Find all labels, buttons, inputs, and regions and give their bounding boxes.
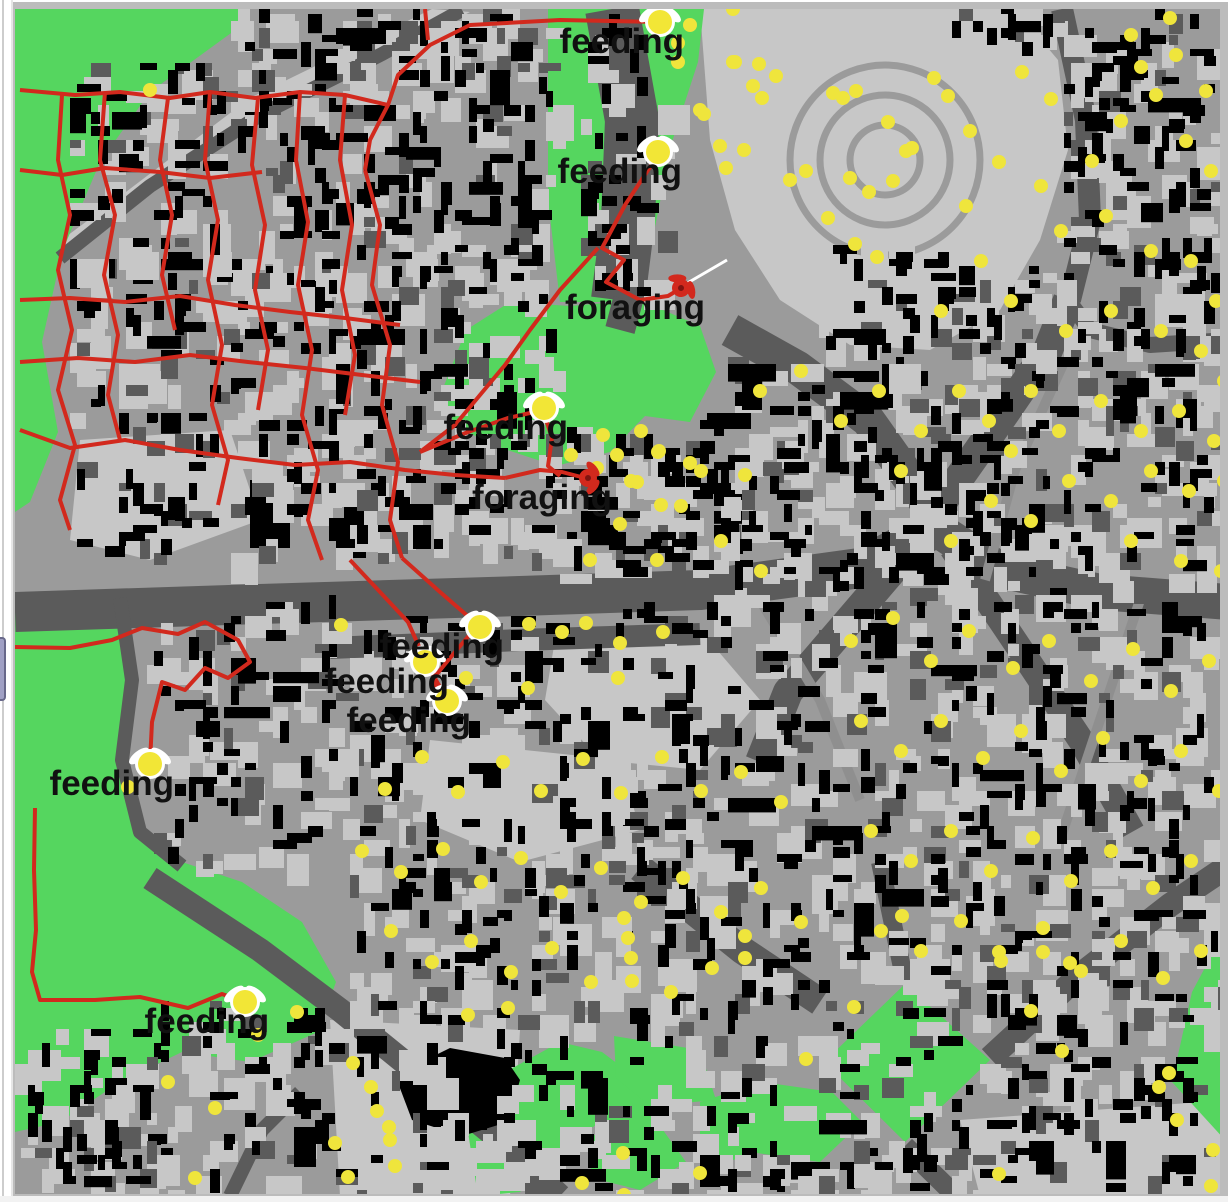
food-dot [613, 517, 627, 531]
agent-state-label: feeding [444, 408, 568, 447]
building [315, 168, 326, 183]
building [805, 840, 816, 852]
building [637, 77, 648, 96]
building [77, 1134, 87, 1151]
building [959, 287, 976, 297]
building [154, 301, 164, 320]
food-dot [1006, 661, 1020, 675]
pavement-patch [1211, 133, 1220, 144]
road-patch [1127, 931, 1147, 948]
building [483, 119, 494, 132]
food-dot [364, 1080, 378, 1094]
building [385, 399, 392, 410]
building [231, 686, 239, 705]
building [1127, 791, 1134, 813]
road-patch [539, 959, 557, 970]
building [875, 1162, 893, 1170]
building [798, 406, 811, 416]
pavement-patch [231, 553, 258, 584]
pavement-patch [1204, 1022, 1220, 1052]
building [189, 483, 197, 500]
building [1162, 378, 1175, 387]
food-dot [941, 89, 955, 103]
building [994, 896, 1005, 916]
building [819, 770, 830, 794]
food-dot [564, 448, 578, 462]
pavement-patch [1036, 350, 1057, 374]
building [413, 9, 420, 20]
building [1085, 1099, 1093, 1117]
building [980, 770, 1024, 781]
building [1092, 1057, 1111, 1068]
building [1064, 133, 1071, 148]
building [1085, 546, 1093, 571]
building [1183, 623, 1192, 636]
building [420, 1134, 427, 1147]
food-dot [161, 1075, 175, 1089]
road-patch [231, 504, 247, 518]
building [1057, 693, 1087, 704]
pavement-patch [1008, 581, 1020, 591]
pavement-patch [847, 1050, 869, 1066]
building [1001, 9, 1014, 14]
building [1043, 665, 1063, 674]
food-dot [738, 951, 752, 965]
road-patch [469, 357, 489, 379]
building [420, 1015, 442, 1024]
building [931, 273, 946, 281]
road-patch [252, 483, 274, 497]
pavement-patch [1057, 280, 1077, 306]
building [546, 329, 557, 353]
building [833, 847, 850, 858]
road-patch [357, 490, 378, 511]
building [329, 749, 338, 761]
food-dot [1036, 921, 1050, 935]
road-patch [896, 448, 915, 463]
building [567, 931, 578, 940]
road-patch [882, 602, 897, 610]
building [994, 602, 1012, 612]
building [616, 560, 641, 568]
building [938, 1036, 963, 1046]
building [70, 189, 85, 198]
pavement-patch [427, 777, 438, 810]
building [1071, 1064, 1090, 1072]
building [1029, 567, 1036, 577]
pavement-patch [539, 917, 552, 930]
building [1001, 483, 1010, 496]
pavement-patch [868, 1169, 892, 1194]
building [1050, 588, 1067, 595]
road-patch [392, 42, 410, 51]
building [1120, 1113, 1136, 1123]
building [777, 490, 800, 500]
building [301, 42, 311, 67]
building [511, 980, 518, 990]
pavement-patch [168, 385, 181, 409]
building [245, 1064, 270, 1074]
building [966, 826, 980, 835]
building [546, 91, 553, 107]
building [350, 777, 358, 796]
food-dot [610, 448, 624, 462]
building [658, 861, 666, 885]
building [672, 539, 694, 547]
food-dot [992, 1167, 1006, 1181]
building [574, 875, 585, 886]
food-dot [834, 414, 848, 428]
building [1092, 602, 1099, 618]
pavement-patch [861, 882, 876, 904]
building [819, 1120, 867, 1134]
building [399, 196, 406, 219]
road-patch [868, 280, 887, 288]
road-patch [980, 280, 991, 303]
building [987, 994, 997, 1018]
building [539, 77, 547, 94]
building [889, 861, 898, 885]
road-patch [147, 1141, 157, 1164]
road-patch [399, 448, 421, 460]
building [966, 903, 984, 911]
food-dot [737, 143, 751, 157]
building [1092, 1141, 1101, 1153]
food-dot [783, 173, 797, 187]
road-patch [1015, 364, 1032, 386]
building [973, 21, 983, 30]
building [700, 483, 709, 498]
pavement-patch [343, 154, 362, 174]
building [455, 504, 469, 515]
road-patch [1141, 980, 1149, 1000]
building [203, 518, 219, 527]
building [1022, 448, 1038, 455]
building [364, 434, 373, 448]
road-patch [224, 329, 240, 345]
road-patch [1036, 560, 1053, 572]
road-patch [819, 1078, 836, 1093]
food-dot [1104, 844, 1118, 858]
pavement-patch [910, 819, 922, 832]
building [182, 700, 206, 709]
building [980, 343, 991, 354]
building [189, 413, 207, 421]
food-dot [625, 974, 639, 988]
building [203, 742, 213, 752]
building [238, 126, 255, 137]
building [924, 1162, 937, 1172]
building [938, 441, 960, 452]
building [644, 826, 659, 837]
building [1071, 889, 1082, 911]
food-dot [388, 1159, 402, 1173]
building [434, 266, 453, 273]
building [497, 1029, 505, 1049]
building [560, 1155, 580, 1166]
building [259, 105, 268, 128]
building [532, 525, 555, 533]
building [420, 329, 427, 354]
road-patch [1113, 665, 1124, 679]
building [490, 154, 513, 163]
food-dot [1174, 554, 1188, 568]
building [1155, 406, 1164, 424]
food-dot [874, 924, 888, 938]
building [588, 231, 597, 244]
building [532, 175, 542, 184]
road-patch [1162, 791, 1184, 810]
road-patch [1050, 924, 1071, 938]
building [322, 707, 330, 723]
pavement-patch [770, 427, 800, 437]
food-dot [1204, 164, 1218, 178]
building [1190, 280, 1210, 290]
building [630, 798, 648, 808]
building [434, 1113, 443, 1126]
road-patch [763, 462, 782, 476]
road-patch [686, 931, 700, 952]
building [1190, 14, 1199, 29]
food-dot [208, 1101, 222, 1115]
road-patch [154, 483, 165, 502]
building [210, 1092, 230, 1100]
building [581, 189, 597, 216]
building [252, 1141, 260, 1155]
building [770, 1085, 777, 1106]
road-patch [497, 28, 505, 44]
building [1106, 1183, 1126, 1192]
building [553, 658, 564, 672]
building [686, 763, 696, 787]
building [413, 889, 423, 897]
road-patch [1211, 182, 1220, 192]
food-dot [1085, 154, 1099, 168]
world-view-frame: feedingfeedingforagingfeedingforagingfee… [13, 2, 1228, 1196]
pavement-patch [119, 364, 151, 385]
building [1183, 1176, 1193, 1186]
pavement-patch [119, 238, 134, 258]
road-patch [651, 658, 666, 674]
building [840, 462, 849, 474]
building [952, 763, 959, 787]
road-patch [959, 9, 973, 21]
building [1176, 525, 1195, 535]
food-dot [355, 844, 369, 858]
building [1120, 1022, 1128, 1045]
building [707, 602, 718, 620]
road-patch [105, 140, 126, 153]
building [490, 259, 497, 282]
pavement-patch [497, 777, 526, 795]
building [623, 511, 640, 518]
food-dot [872, 384, 886, 398]
food-dot [746, 79, 760, 93]
food-dot [1055, 1044, 1069, 1058]
road-patch [1106, 413, 1114, 436]
pavement-patch [434, 749, 458, 759]
building [259, 420, 280, 431]
building [952, 700, 959, 711]
pavement-patch [546, 112, 574, 141]
food-dot [713, 139, 727, 153]
pavement-patch [819, 511, 849, 525]
road-patch [875, 763, 886, 786]
building [371, 903, 389, 911]
building [1057, 357, 1079, 367]
food-dot [576, 752, 590, 766]
building [791, 994, 799, 1010]
building [224, 1134, 233, 1150]
food-dot [436, 842, 450, 856]
building [707, 938, 715, 960]
pavement-patch [231, 21, 244, 41]
building [357, 525, 368, 544]
building [1134, 252, 1145, 277]
building [1092, 133, 1103, 155]
building [77, 301, 101, 311]
building [1015, 784, 1025, 800]
building [1141, 742, 1149, 760]
building [1197, 455, 1208, 465]
pavement-patch [1127, 679, 1142, 692]
pavement-patch [539, 357, 554, 388]
building [539, 294, 548, 304]
building [441, 56, 450, 81]
building [91, 1050, 98, 1075]
building [770, 665, 784, 672]
building [532, 959, 541, 971]
road-patch [581, 434, 591, 452]
road-patch [1134, 581, 1148, 604]
building [665, 553, 690, 562]
building [476, 63, 484, 73]
building [511, 196, 518, 206]
food-dot [656, 625, 670, 639]
food-dot [799, 1052, 813, 1066]
vertical-slider-handle[interactable] [0, 637, 6, 701]
building [896, 294, 917, 304]
building [91, 1029, 111, 1036]
building [133, 238, 149, 247]
building [357, 245, 366, 260]
building [854, 567, 864, 589]
building [952, 1120, 960, 1131]
food-dot [1144, 464, 1158, 478]
building [672, 721, 681, 746]
building [1113, 385, 1123, 396]
building [126, 469, 133, 489]
building [784, 861, 798, 869]
food-dot [634, 424, 648, 438]
building [532, 210, 539, 234]
food-dot [1024, 1004, 1038, 1018]
building [1162, 847, 1173, 857]
food-dot [753, 384, 767, 398]
building [147, 413, 158, 422]
building [994, 1120, 1017, 1127]
building [245, 1113, 256, 1127]
pavement-patch [784, 1106, 817, 1121]
building [245, 497, 256, 515]
building [1071, 980, 1079, 998]
building [154, 651, 163, 666]
food-dot [1184, 254, 1198, 268]
building [1190, 1113, 1198, 1126]
building [833, 784, 850, 792]
building [721, 518, 728, 533]
building [658, 784, 682, 791]
building [798, 980, 810, 990]
building [203, 196, 212, 207]
building [875, 490, 884, 501]
building [861, 511, 871, 529]
food-dot [1152, 1080, 1166, 1094]
building [392, 252, 412, 259]
building [1197, 469, 1212, 478]
road-patch [1001, 924, 1015, 932]
building [791, 903, 801, 910]
building [966, 490, 986, 501]
building [819, 980, 830, 993]
food-dot [1162, 1066, 1176, 1080]
road-patch [518, 1015, 540, 1030]
food-dot [697, 107, 711, 121]
agent-state-label: feeding [347, 701, 471, 740]
building [784, 945, 800, 952]
building [259, 504, 266, 518]
building [287, 1022, 312, 1033]
building [623, 714, 645, 721]
building [693, 448, 701, 458]
building [1008, 1022, 1026, 1030]
road-patch [259, 28, 270, 48]
building [966, 847, 981, 857]
pavement-patch [1204, 840, 1220, 862]
building [175, 161, 200, 168]
building [602, 196, 617, 206]
agent-state-label: feeding [380, 627, 504, 666]
pavement-patch [588, 686, 602, 702]
pavement-patch [301, 707, 317, 723]
building [77, 84, 101, 92]
pavement-patch [266, 21, 299, 43]
building [1176, 994, 1187, 1002]
food-dot [899, 144, 913, 158]
food-dot [719, 161, 733, 175]
food-dot [1104, 494, 1118, 508]
road-patch [364, 805, 383, 823]
building [1036, 763, 1043, 786]
building [1106, 700, 1114, 718]
building [931, 756, 949, 764]
building [623, 658, 634, 670]
road-patch [504, 546, 513, 559]
building [952, 672, 974, 681]
building [966, 1085, 973, 1095]
pavement-patch [1078, 994, 1102, 1024]
building [525, 889, 537, 896]
building [280, 231, 294, 239]
building [1113, 259, 1125, 267]
building [483, 343, 490, 358]
building [658, 945, 669, 967]
pavement-patch [987, 1071, 1006, 1093]
pavement-patch [973, 42, 1000, 75]
building [133, 140, 144, 151]
building [1134, 847, 1149, 854]
building [1169, 315, 1186, 323]
